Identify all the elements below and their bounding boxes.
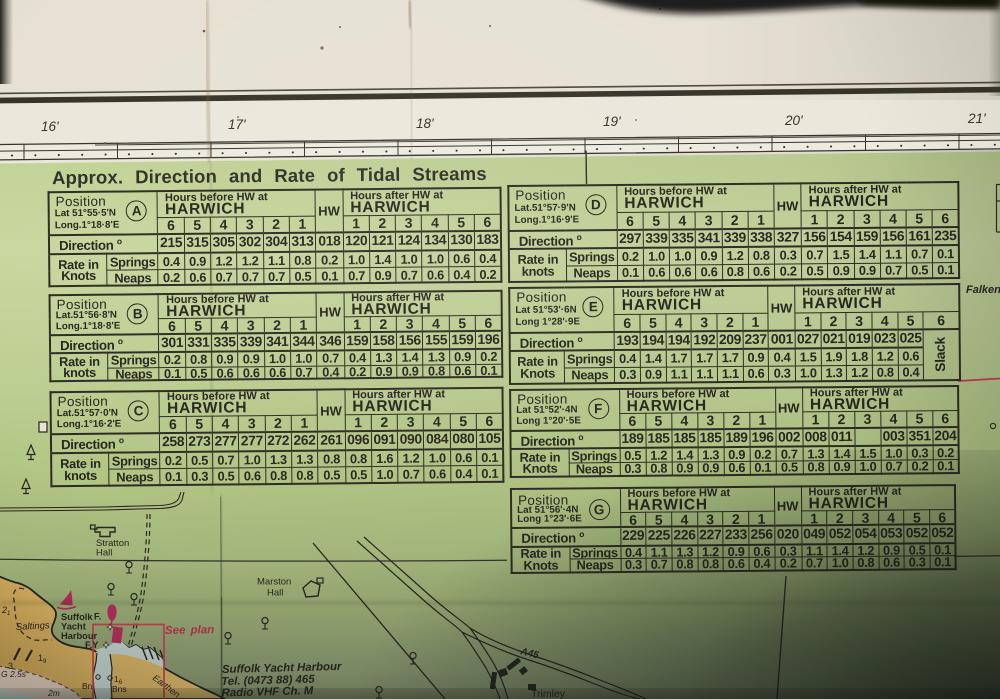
- svg-text:Hall: Hall: [96, 548, 112, 559]
- svg-text:Falken: Falken: [966, 284, 1000, 296]
- svg-text:Marston: Marston: [257, 577, 291, 588]
- svg-text:F.: F.: [94, 612, 101, 622]
- svg-text:Trimley: Trimley: [531, 688, 566, 699]
- svg-text:Hall: Hall: [267, 588, 283, 599]
- svg-text:Yacht: Yacht: [61, 622, 86, 632]
- svg-text:Bn: Bn: [82, 681, 93, 691]
- svg-text:See plan: See plan: [165, 624, 215, 637]
- svg-text:2m: 2m: [47, 688, 60, 698]
- svg-text:F.Y: F.Y: [85, 640, 99, 650]
- svg-text:Saltings: Saltings: [16, 620, 51, 633]
- svg-text:Radio VHF Ch. M: Radio VHF Ch. M: [221, 685, 314, 699]
- svg-text:G 2.5s: G 2.5s: [1, 669, 27, 679]
- svg-text:Suffolk: Suffolk: [61, 612, 93, 622]
